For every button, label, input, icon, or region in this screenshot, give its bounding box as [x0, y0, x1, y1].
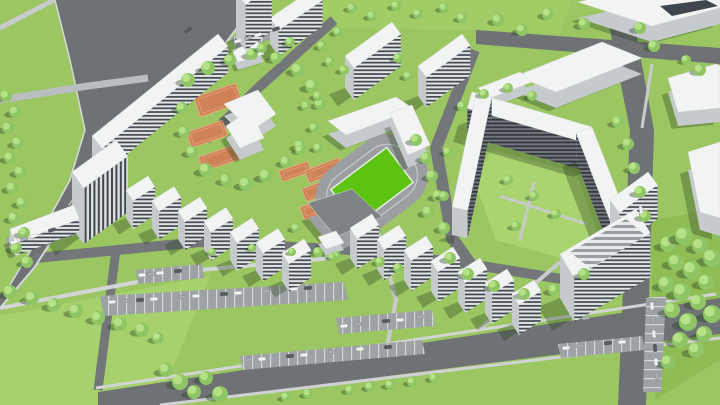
tree-highlight: [704, 306, 714, 316]
car: [618, 340, 626, 344]
car: [286, 354, 294, 358]
tree-highlight: [376, 258, 382, 264]
tree-highlight: [684, 262, 694, 272]
tree-highlight: [314, 248, 320, 254]
tree-highlight: [543, 9, 550, 16]
tree-highlight: [92, 312, 100, 320]
tree-highlight: [414, 10, 420, 16]
car: [396, 318, 404, 322]
car: [304, 286, 312, 290]
tree-highlight: [1, 91, 8, 98]
tree-highlight: [613, 117, 620, 124]
tree-highlight: [346, 386, 352, 392]
car: [604, 341, 612, 345]
tree-highlight: [680, 314, 690, 324]
tree-highlight: [649, 41, 656, 48]
tree-highlight: [463, 269, 470, 276]
tree-highlight: [682, 56, 688, 62]
car: [655, 372, 659, 380]
tree-highlight: [392, 2, 398, 8]
tree-highlight: [480, 90, 486, 96]
car: [136, 298, 144, 302]
tree-highlight: [386, 381, 392, 387]
car: [354, 322, 362, 326]
tree-highlight: [368, 12, 374, 18]
car: [220, 292, 228, 296]
tree-highlight: [70, 305, 78, 313]
tree-highlight: [697, 327, 706, 336]
tree-highlight: [549, 285, 556, 292]
tree-highlight: [318, 42, 324, 48]
tree-highlight: [693, 239, 702, 248]
tree-highlight: [22, 257, 29, 264]
tree-highlight: [225, 55, 232, 62]
tree-highlight: [579, 19, 586, 26]
tree-highlight: [202, 62, 210, 70]
tree-highlight: [200, 164, 208, 172]
tree-highlight: [517, 25, 524, 32]
car: [340, 324, 348, 328]
tree-highlight: [458, 102, 464, 108]
car: [651, 316, 655, 324]
tree-highlight: [440, 4, 446, 10]
car: [178, 295, 186, 299]
tree-highlight: [665, 303, 674, 312]
tree-highlight: [15, 167, 22, 174]
tree-highlight: [440, 192, 446, 198]
tree-highlight: [427, 171, 434, 178]
car: [258, 357, 266, 361]
tree-highlight: [5, 153, 12, 160]
tree-highlight: [623, 139, 630, 146]
tree-highlight: [430, 374, 436, 380]
car: [290, 287, 298, 291]
car: [652, 330, 656, 338]
tree-highlight: [394, 54, 400, 60]
tree-highlight: [695, 65, 702, 72]
car: [576, 344, 584, 348]
tree-highlight: [160, 364, 168, 372]
tree-highlight: [676, 228, 686, 238]
tree-highlight: [314, 92, 320, 98]
tree-highlight: [519, 289, 526, 296]
car: [328, 350, 336, 354]
tree-highlight: [504, 84, 510, 90]
tree-highlight: [173, 375, 182, 384]
tree-highlight: [699, 275, 708, 284]
tree-highlight: [314, 144, 320, 150]
car: [108, 300, 116, 304]
tree-highlight: [659, 277, 668, 286]
car: [653, 344, 657, 352]
tree-highlight: [635, 23, 642, 30]
car: [156, 271, 164, 275]
tree-highlight: [326, 58, 332, 64]
car: [244, 358, 252, 362]
tree-highlight: [439, 223, 446, 230]
tree-highlight: [10, 107, 17, 114]
tree-highlight: [9, 213, 16, 220]
tree-highlight: [247, 49, 254, 56]
tree-highlight: [340, 66, 346, 72]
tree-highlight: [282, 393, 288, 399]
tree-highlight: [213, 387, 222, 396]
tree-highlight: [552, 210, 558, 216]
tree-highlight: [662, 356, 670, 364]
tree-highlight: [423, 207, 430, 214]
tree-highlight: [286, 38, 292, 44]
tree-highlight: [3, 123, 10, 130]
tree-highlight: [188, 386, 196, 394]
tree-highlight: [260, 170, 268, 178]
car: [382, 319, 390, 323]
tree-highlight: [177, 103, 184, 110]
tree-highlight: [296, 146, 302, 152]
tree-highlight: [673, 333, 682, 342]
tree-highlight: [411, 135, 418, 142]
car: [192, 294, 200, 298]
car: [150, 297, 158, 301]
tree-highlight: [17, 198, 24, 205]
tree-highlight: [258, 44, 264, 50]
tree-highlight: [4, 286, 12, 294]
tree-highlight: [209, 248, 214, 253]
tree-highlight: [408, 378, 414, 384]
car: [147, 272, 155, 276]
tree-highlight: [404, 72, 410, 78]
tree-highlight: [292, 64, 300, 72]
tree-highlight: [240, 178, 248, 186]
tree-highlight: [458, 14, 464, 20]
tree-highlight: [669, 255, 678, 264]
tree-highlight: [306, 80, 314, 88]
tree-highlight: [182, 74, 190, 82]
render-viewport: [0, 0, 720, 405]
car: [300, 353, 308, 357]
tree-highlight: [7, 183, 14, 190]
tree-highlight: [136, 324, 144, 332]
tree-highlight: [348, 4, 354, 10]
car: [234, 291, 242, 295]
tree-highlight: [310, 124, 316, 130]
tree-highlight: [445, 253, 452, 260]
car: [416, 315, 424, 319]
car: [174, 269, 182, 273]
tree: [0, 90, 12, 102]
tree-highlight: [281, 157, 288, 164]
tree-highlight: [13, 138, 20, 145]
tree-highlight: [249, 244, 254, 249]
tree-highlight: [292, 224, 298, 230]
car: [262, 289, 270, 293]
scene-root: [0, 0, 720, 405]
tree-highlight: [444, 148, 450, 154]
tree-highlight: [48, 299, 56, 307]
car: [654, 358, 658, 366]
car: [122, 299, 130, 303]
tree-highlight: [530, 192, 536, 198]
tree-highlight: [200, 372, 208, 380]
car: [138, 273, 146, 277]
tree-highlight: [629, 163, 636, 170]
tree-highlight: [528, 92, 534, 98]
tree-highlight: [19, 228, 26, 235]
tree-highlight: [635, 187, 642, 194]
tree-highlight: [489, 281, 496, 288]
courtyard-wing-west-end-a: [452, 207, 468, 238]
tree-highlight: [179, 127, 186, 134]
tree-highlight: [674, 284, 684, 294]
tree-highlight: [114, 318, 122, 326]
city-district-3d-render: [0, 0, 720, 405]
tree-highlight: [26, 292, 34, 300]
car: [562, 346, 570, 350]
tree-highlight: [153, 333, 160, 340]
car: [384, 345, 392, 349]
tree-highlight: [187, 147, 194, 154]
tree-highlight: [334, 28, 340, 34]
car: [356, 347, 364, 351]
tree-highlight: [271, 53, 278, 60]
tree-highlight: [493, 15, 500, 22]
tree-highlight: [512, 222, 518, 228]
tree-highlight: [394, 264, 400, 270]
tree-highlight: [421, 153, 428, 160]
tree-highlight: [579, 269, 586, 276]
tree-highlight: [221, 175, 228, 182]
tree-highlight: [366, 383, 372, 389]
tree-highlight: [704, 250, 714, 260]
tree-highlight: [302, 102, 308, 108]
tree-highlight: [504, 176, 510, 182]
car: [650, 302, 654, 310]
tree-highlight: [304, 390, 310, 396]
tree-highlight: [689, 343, 698, 352]
tree-highlight: [329, 253, 334, 258]
tree-highlight: [289, 248, 294, 253]
tree-highlight: [691, 295, 700, 304]
